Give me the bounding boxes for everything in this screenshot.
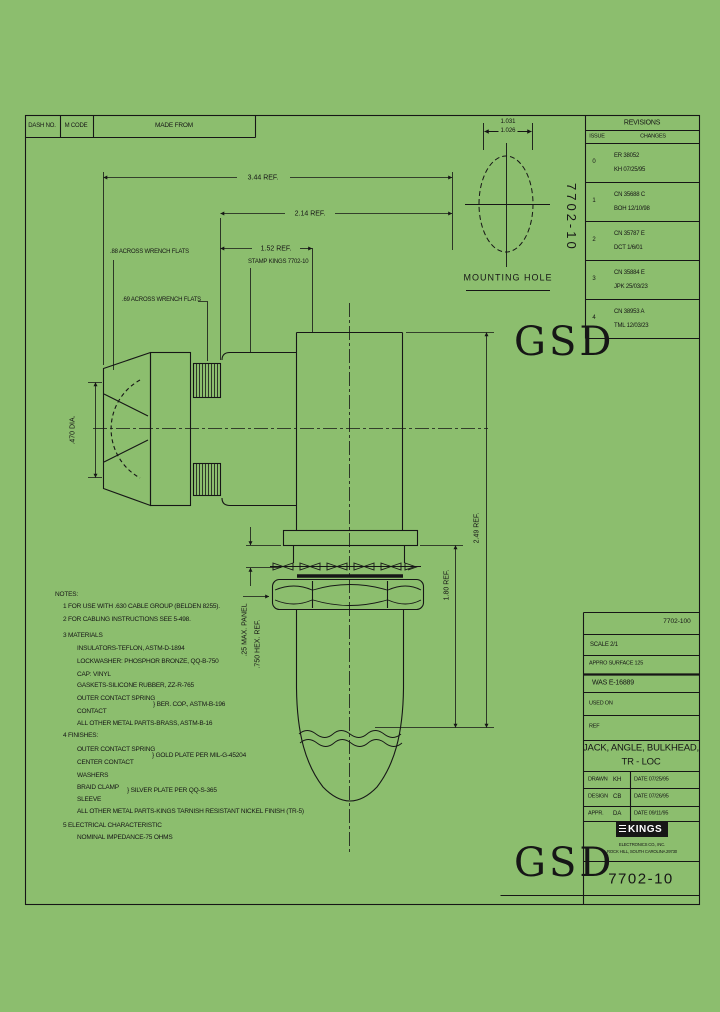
tb-drawn-by: KH xyxy=(613,777,621,783)
rev-sign: JPK 25/03/23 xyxy=(614,284,648,290)
hidden-bore-arc xyxy=(111,380,140,478)
tb-design-by: CB xyxy=(613,794,621,800)
tb-design-label: DESIGN xyxy=(588,794,608,800)
rev-ref: CN 35688 C xyxy=(614,192,645,198)
revisions-title: REVISIONS xyxy=(624,120,660,127)
tb-part-no: 7702-10 xyxy=(608,872,674,887)
note-line: 5 ELECTRICAL CHARACTERISTIC xyxy=(63,823,162,830)
notes-title: NOTES: xyxy=(55,592,78,599)
header-made-from: MADE FROM xyxy=(155,123,193,130)
note-line: 1 FOR USE WITH .630 CABLE GROUP (BELDEN … xyxy=(63,604,220,611)
rev-ref: CN 35884 E xyxy=(614,270,645,276)
mounting-hole-dim-upper: 1.031 xyxy=(498,119,517,125)
note-line: CAP: VINYL xyxy=(77,672,111,679)
tb-company-line2: ROCK HILL, SOUTH CAROLINA 29730 xyxy=(607,850,677,854)
note-line: CONTACT xyxy=(77,709,107,716)
note-line: ALL OTHER METAL PARTS-BRASS, ASTM-B-16 xyxy=(77,721,212,728)
rev-sign: BOH 12/10/98 xyxy=(614,206,650,212)
dim-hex: .750 HEX. REF. xyxy=(255,619,262,668)
rev-ref: CN 35787 E xyxy=(614,231,645,237)
note-line: CENTER CONTACT xyxy=(77,760,134,767)
tb-was: WAS E-16889 xyxy=(592,680,634,687)
flats-large: .88 ACROSS WRENCH FLATS xyxy=(110,249,189,255)
drawing-sheet: DASH NO. M CODE MADE FROM REVISIONS ISSU… xyxy=(0,0,720,1012)
stamp-note: STAMP KINGS 7702-10 xyxy=(248,259,308,265)
cable-sleeve xyxy=(297,610,404,688)
flats69-leader xyxy=(198,302,208,362)
revisions-table-lines xyxy=(586,116,700,339)
tb-scale: SCALE 2/1 xyxy=(590,642,618,648)
rev-issue: 2 xyxy=(592,237,595,243)
dim-mid: 2.14 REF. xyxy=(293,211,328,218)
rev-sign: DCT 1/6/01 xyxy=(614,245,643,251)
note-line: LOCKWASHER: PHOSPHOR BRONZE, QQ-B-750 xyxy=(77,659,219,666)
header-dash-no: DASH NO. xyxy=(28,123,55,129)
note-line: 4 FINISHES: xyxy=(63,733,98,740)
side-doc-number: 7702-10 xyxy=(565,183,578,252)
note-line: } SILVER PLATE PER QQ-S-365 xyxy=(127,788,217,795)
rev-ref: CN 38953 A xyxy=(614,309,644,315)
dim-height-overall: 2.49 REF. xyxy=(474,513,481,544)
revisions-col-changes: CHANGES xyxy=(640,134,666,140)
rev-issue: 0 xyxy=(592,159,595,165)
rev-ref: ER 38052 xyxy=(614,153,639,159)
hex-nut-chamfers xyxy=(275,585,421,606)
tb-used-on: USED ON xyxy=(589,701,613,707)
note-line: WASHERS xyxy=(77,773,108,780)
header-table-lines xyxy=(26,116,256,138)
dim-short: 1.52 REF. xyxy=(259,246,294,253)
gsd-watermark-bottom: GSD xyxy=(514,843,614,883)
note-line: OUTER CONTACT SPRING xyxy=(77,747,155,754)
rev-sign: KH 07/25/95 xyxy=(614,167,645,173)
nose-outline xyxy=(104,353,151,506)
note-line: 2 FOR CABLING INSTRUCTIONS SEE 5-498. xyxy=(63,617,191,624)
break-wave-2 xyxy=(300,740,402,747)
dim-panel: .25 MAX. PANEL xyxy=(242,603,249,656)
flats-small: .69 ACROSS WRENCH FLATS xyxy=(122,297,201,303)
tb-title-line2: TR - LOC xyxy=(621,757,660,767)
note-line: SLEEVE xyxy=(77,797,101,804)
note-line: 3 MATERIALS xyxy=(63,633,103,640)
knurl-bottom xyxy=(194,464,221,496)
tb-title-line1: JACK, ANGLE, BULKHEAD, xyxy=(583,743,699,753)
note-line: } BER. COP., ASTM-B-196 xyxy=(153,702,225,709)
coupling-body xyxy=(151,353,191,506)
mounting-hole-ellipse xyxy=(479,156,533,252)
rev-issue: 3 xyxy=(592,276,595,282)
hex-nut-facets xyxy=(313,581,388,608)
dim-overall: 3.44 REF. xyxy=(246,175,281,182)
kings-logo-word: KINGS xyxy=(628,824,662,835)
connector-body xyxy=(104,333,424,802)
tb-doc-no: 7702-100 xyxy=(663,619,690,626)
note-line: GASKETS-SILICONE RUBBER, ZZ-R-765 xyxy=(77,683,194,690)
tb-surface: APPRO SURFACE 125 xyxy=(589,661,643,667)
tb-appr-by: DA xyxy=(613,811,621,817)
tb-drawn-date: DATE 07/25/95 xyxy=(634,777,669,783)
break-wave-1 xyxy=(299,731,401,738)
mounting-hole-label: MOUNTING HOLE xyxy=(463,274,552,283)
header-m-code: M CODE xyxy=(65,123,88,129)
tb-appr-date: DATE 09/11/95 xyxy=(634,811,668,817)
note-line: OUTER CONTACT SPRING xyxy=(77,696,155,703)
note-line: BRAID CLAMP xyxy=(77,785,119,792)
centerlines xyxy=(93,303,488,852)
dim-nose-dia: .470 DIA. xyxy=(70,415,77,444)
knurl-top xyxy=(194,364,221,398)
tb-drawn-label: DRAWN xyxy=(588,777,608,783)
dim-height-lower: 1.80 REF. xyxy=(444,570,451,601)
kings-logo: KINGS xyxy=(616,822,668,837)
mounting-hole-dim-lower: 1.026 xyxy=(498,128,517,134)
note-line: } GOLD PLATE PER MIL-G-45204 xyxy=(152,753,246,760)
tb-appr-label: APPR. xyxy=(588,811,604,817)
note-line: ALL OTHER METAL PARTS-KINGS TARNISH RESI… xyxy=(77,809,304,816)
revisions-col-issue: ISSUE xyxy=(589,134,605,140)
rev-sign: TML 12/03/23 xyxy=(614,323,648,329)
note-line: INSULATORS-TEFLON, ASTM-D-1894 xyxy=(77,646,185,653)
hex-nut xyxy=(273,580,424,610)
threaded-neck xyxy=(294,546,405,564)
tb-company-line1: ELECTRONICS CO., INC. xyxy=(619,843,665,847)
flange xyxy=(284,531,418,546)
gsd-watermark-top: GSD xyxy=(514,322,614,362)
tb-ref: REF xyxy=(589,724,599,730)
rev-issue: 1 xyxy=(592,198,595,204)
mid-body xyxy=(222,353,296,506)
note-line: NOMINAL IMPEDANCE-75 OHMS xyxy=(77,835,173,842)
tb-design-date: DATE 07/26/95 xyxy=(634,794,669,800)
mounting-hole-crosshair xyxy=(465,143,550,267)
kings-logo-stripes-icon xyxy=(619,825,626,834)
